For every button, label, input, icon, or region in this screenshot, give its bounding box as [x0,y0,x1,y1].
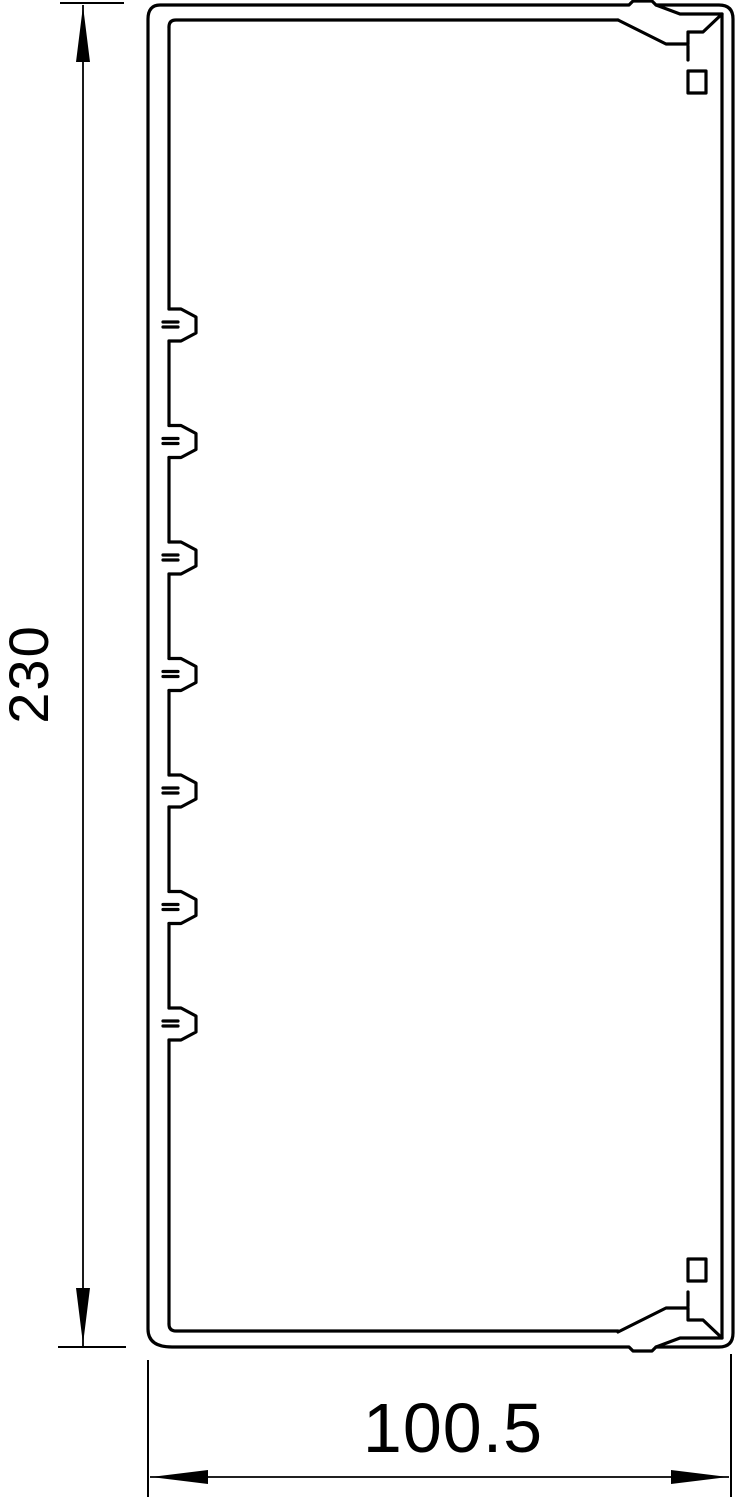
cover-latch-bottom [618,1308,722,1347]
dimensions: 230 100.5 [0,3,731,1497]
profile-outer-outline [148,1,733,1351]
profile-inner-top-line [169,20,618,27]
width-dimension-label: 100.5 [363,1389,543,1467]
cover-latch-top [618,5,722,44]
profile-inner-bottom-line [169,1324,618,1331]
height-dimension-label: 230 [0,624,60,723]
width-dimension: 100.5 [148,1354,731,1497]
height-dim-arrow-up [76,6,90,62]
trunking-cross-section-drawing: 230 100.5 [0,0,736,1500]
latch-tab-bottom [688,1259,706,1306]
profile [148,1,733,1351]
width-dim-arrow-right [671,1470,728,1484]
height-dimension: 230 [0,3,126,1347]
width-dim-arrow-left [151,1470,208,1484]
latch-tab-top [688,46,706,93]
height-dim-arrow-down [76,1288,90,1344]
technical-drawing-page: 230 100.5 [0,0,736,1500]
